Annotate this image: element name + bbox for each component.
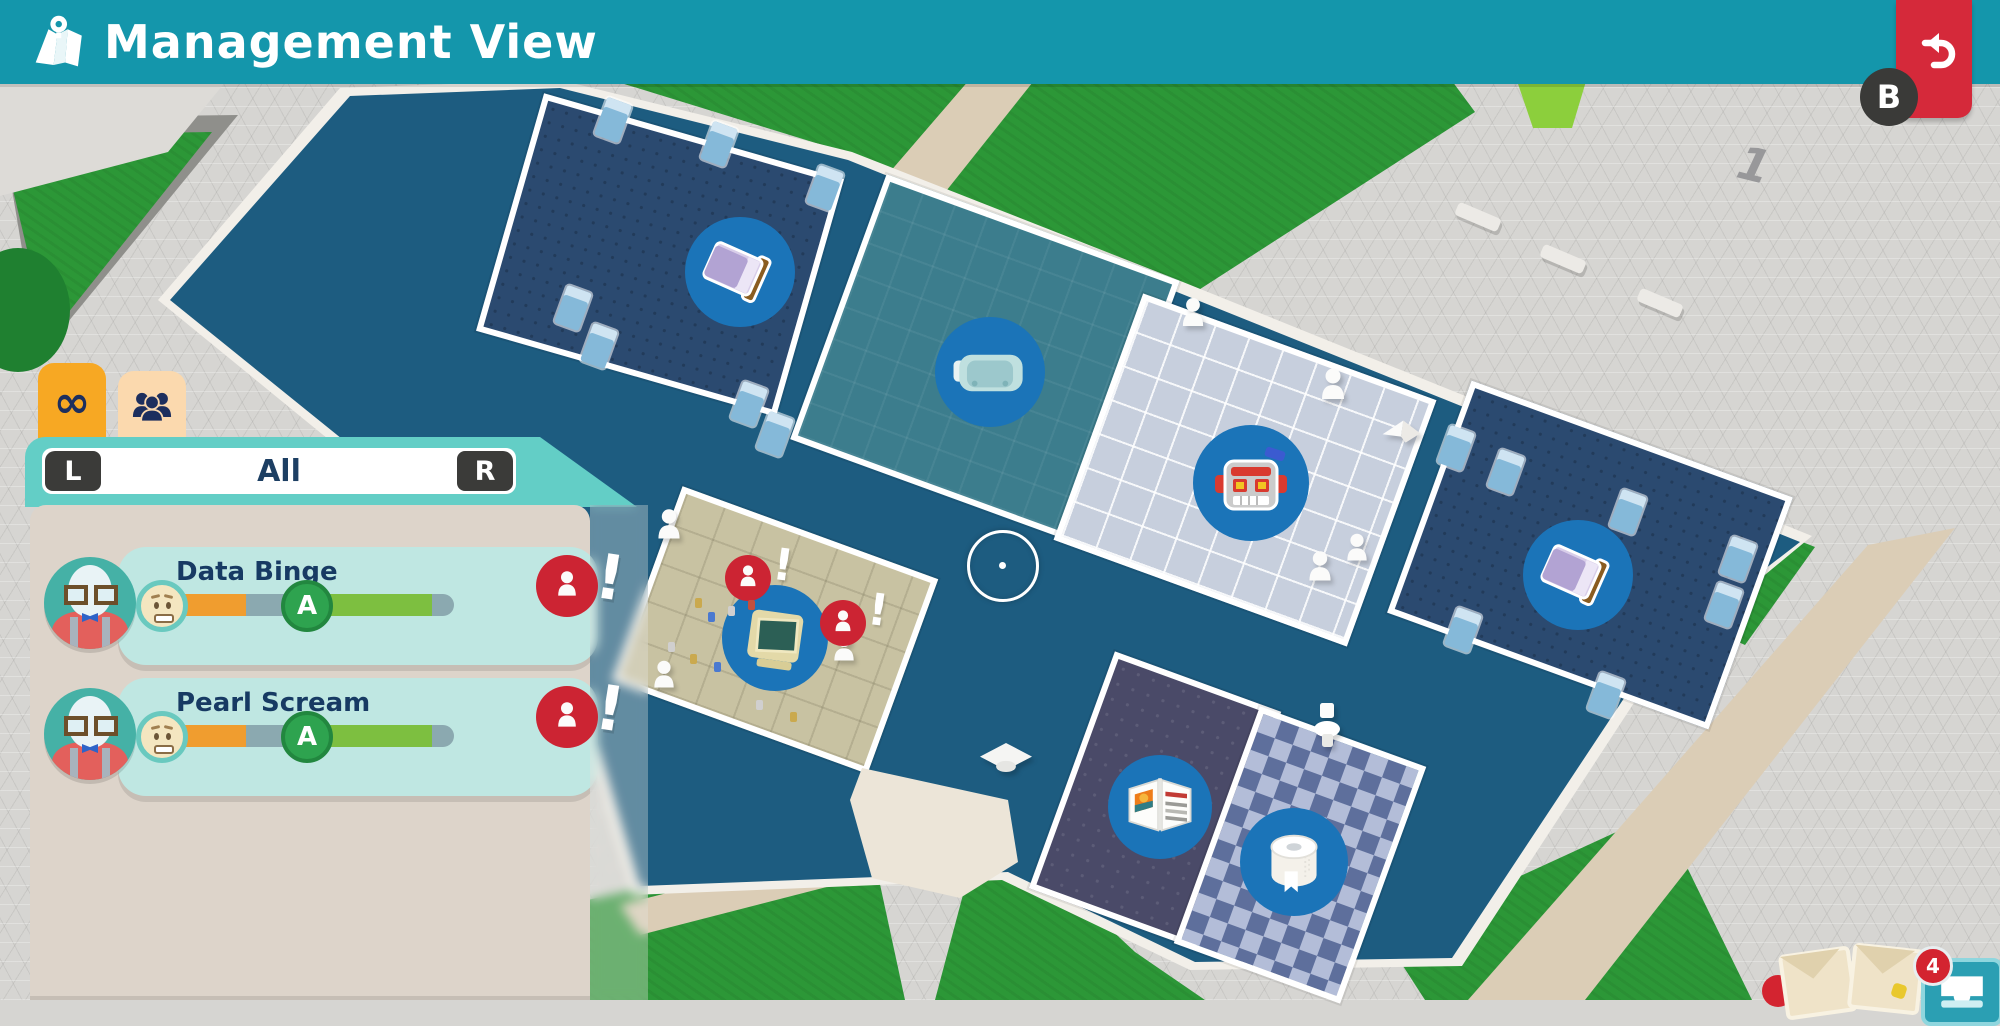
glasses-icon: [64, 585, 88, 605]
inbox-badge: 4: [1913, 946, 1953, 986]
panel-content: Data Binge A !: [30, 505, 590, 1000]
book-icon[interactable]: [1108, 755, 1212, 859]
toilet-statue: [1302, 698, 1352, 756]
character-name: Pearl Scream: [176, 688, 370, 718]
inbox-badge-count: 4: [1926, 954, 1940, 978]
tiny-student: [756, 700, 763, 710]
filter-pill: L All R: [42, 448, 516, 494]
tiny-student: [708, 612, 715, 622]
plaza-marker: 1: [1732, 135, 1776, 195]
tiny-student: [748, 600, 755, 610]
mood-face-icon: [136, 580, 188, 632]
person-statue: [1170, 292, 1216, 338]
student-alert-badge[interactable]: [820, 600, 866, 646]
people-icon: [129, 387, 175, 427]
tab-assignments[interactable]: ∞: [38, 363, 106, 443]
character-alert-badge[interactable]: [536, 686, 598, 748]
tiny-student: [714, 662, 721, 672]
panel-header: L All R: [25, 437, 637, 507]
grade-label: A: [297, 591, 317, 621]
bench: [1539, 244, 1587, 275]
title-bar: Management View: [0, 0, 2000, 84]
bed-icon-east[interactable]: [1523, 520, 1633, 630]
computer-icon[interactable]: [722, 585, 828, 691]
bench: [1454, 202, 1502, 233]
character-card[interactable]: Pearl Scream A !: [118, 678, 598, 796]
robot-icon[interactable]: [1193, 425, 1309, 541]
tiny-student: [690, 654, 697, 664]
character-alert-badge[interactable]: [536, 555, 598, 617]
infinity-icon: ∞: [54, 381, 91, 425]
filter-next-button[interactable]: R: [457, 451, 513, 491]
map-cursor[interactable]: [967, 530, 1039, 602]
filter-value: All: [257, 454, 301, 489]
vr-headset-icon[interactable]: [935, 317, 1045, 427]
staff-panel: ∞ L All R: [0, 355, 660, 1000]
paper-bird-statue: [1378, 415, 1424, 449]
grade-badge: A: [281, 580, 333, 632]
tiny-student: [668, 642, 675, 652]
gamepad-b-button[interactable]: B: [1860, 68, 1918, 126]
bed-icon[interactable]: [685, 217, 795, 327]
tiny-student: [695, 598, 702, 608]
undo-arrow-icon: [1910, 26, 1960, 76]
tab-people[interactable]: [118, 371, 186, 443]
character-card[interactable]: Data Binge A !: [118, 547, 598, 665]
page-title: Management View: [104, 15, 598, 69]
tiny-student: [728, 606, 735, 616]
grade-badge: A: [281, 711, 333, 763]
b-button-label: B: [1877, 78, 1901, 116]
person-statue: [1335, 528, 1379, 572]
glasses-icon: [64, 716, 88, 736]
avatar: [44, 557, 136, 649]
student-alert-badge[interactable]: [725, 555, 771, 601]
grade-label: A: [297, 722, 317, 752]
l-button-label: L: [64, 456, 81, 487]
tiny-student: [790, 712, 797, 722]
r-button-label: R: [475, 456, 496, 487]
bench: [1636, 288, 1684, 319]
avatar: [44, 688, 136, 780]
mail-icon[interactable]: [1847, 942, 1926, 1015]
toilet-roll-icon[interactable]: [1240, 808, 1348, 916]
mail-icon[interactable]: [1778, 945, 1858, 1020]
mood-face-icon: [136, 711, 188, 763]
map-icon: [28, 10, 92, 74]
filter-prev-button[interactable]: L: [45, 451, 101, 491]
person-statue: [1308, 362, 1358, 412]
grad-cap-statue: [975, 738, 1037, 790]
